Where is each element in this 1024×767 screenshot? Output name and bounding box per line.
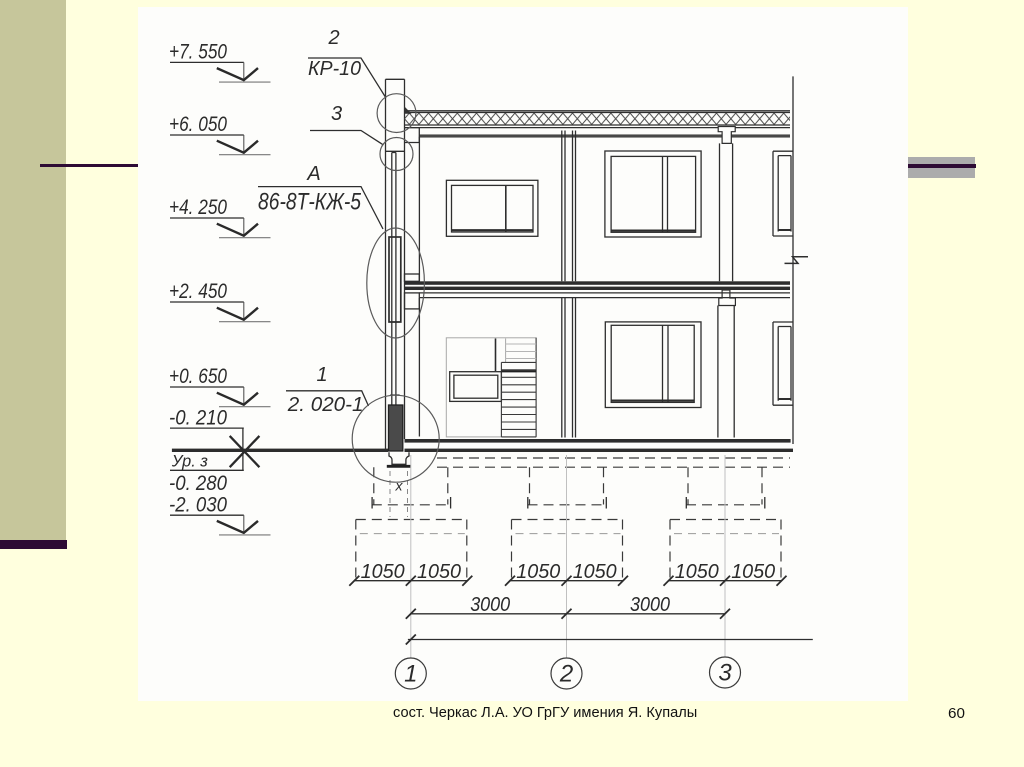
svg-text:3000: 3000 xyxy=(630,594,670,616)
svg-text:+6. 050: +6. 050 xyxy=(169,112,227,136)
svg-text:-2. 030: -2. 030 xyxy=(169,492,227,516)
svg-text:Ур. з: Ур. з xyxy=(171,452,208,471)
svg-text:3: 3 xyxy=(718,660,732,687)
svg-text:2. 020-1: 2. 020-1 xyxy=(287,394,364,416)
svg-text:-0. 210: -0. 210 xyxy=(169,405,227,429)
svg-text:+0. 650: +0. 650 xyxy=(169,364,227,388)
svg-text:3: 3 xyxy=(331,103,342,125)
svg-text:1050: 1050 xyxy=(675,561,719,583)
svg-text:1050: 1050 xyxy=(573,561,617,583)
svg-text:x: x xyxy=(395,478,404,494)
svg-text:1050: 1050 xyxy=(417,561,461,583)
svg-text:1050: 1050 xyxy=(361,561,405,583)
svg-text:+7. 550: +7. 550 xyxy=(169,40,227,64)
svg-text:А: А xyxy=(306,163,320,185)
svg-text:2: 2 xyxy=(327,27,339,49)
svg-text:86-8Т-КЖ-5: 86-8Т-КЖ-5 xyxy=(258,189,362,216)
svg-text:-0. 280: -0. 280 xyxy=(169,471,227,495)
svg-text:1050: 1050 xyxy=(731,561,775,583)
svg-text:КР-10: КР-10 xyxy=(308,58,361,80)
svg-text:1: 1 xyxy=(404,661,417,688)
svg-text:1: 1 xyxy=(316,364,327,386)
svg-text:+4. 250: +4. 250 xyxy=(169,195,227,219)
svg-text:1050: 1050 xyxy=(516,561,560,583)
svg-text:3000: 3000 xyxy=(470,594,510,616)
svg-text:2: 2 xyxy=(559,661,573,688)
svg-text:+2. 450: +2. 450 xyxy=(169,279,227,303)
